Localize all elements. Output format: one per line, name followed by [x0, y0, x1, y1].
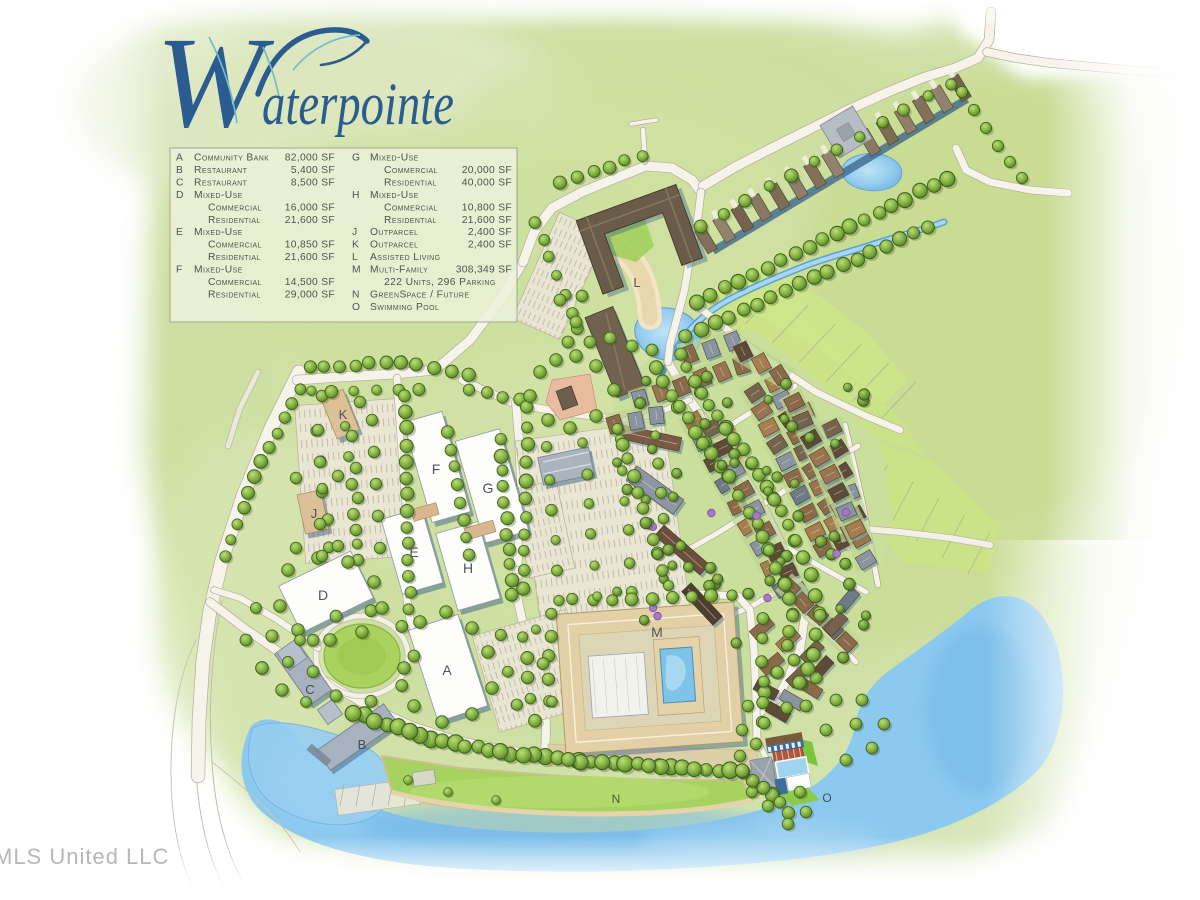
svg-text:82,000 SF: 82,000 SF	[285, 153, 335, 164]
svg-text:B: B	[358, 737, 367, 752]
svg-text:Restaurant: Restaurant	[194, 165, 248, 176]
svg-text:J: J	[311, 506, 318, 521]
svg-text:Residential: Residential	[208, 252, 261, 263]
svg-text:W: W	[156, 11, 275, 155]
svg-text:H: H	[352, 190, 359, 201]
svg-text:21,600 SF: 21,600 SF	[285, 252, 335, 263]
svg-text:H: H	[463, 560, 473, 576]
svg-text:5,400 SF: 5,400 SF	[291, 165, 335, 176]
svg-text:222 Units, 296 Parking: 222 Units, 296 Parking	[384, 277, 496, 288]
svg-text:D: D	[176, 190, 183, 201]
svg-text:10,850 SF: 10,850 SF	[285, 240, 335, 251]
svg-text:Commercial: Commercial	[208, 202, 262, 213]
svg-text:10,800 SF: 10,800 SF	[462, 202, 512, 213]
svg-text:L: L	[633, 275, 640, 290]
svg-text:Mixed-Use: Mixed-Use	[370, 153, 419, 164]
svg-text:E: E	[409, 544, 418, 560]
svg-text:Mixed-Use: Mixed-Use	[194, 265, 243, 276]
svg-text:Mixed-Use: Mixed-Use	[370, 190, 419, 201]
svg-text:N: N	[352, 289, 359, 300]
svg-text:GreenSpace / Future: GreenSpace / Future	[370, 289, 469, 300]
svg-text:2,400 SF: 2,400 SF	[468, 227, 512, 238]
svg-text:B: B	[176, 165, 183, 176]
svg-text:E: E	[176, 227, 183, 238]
svg-text:Swimming Pool: Swimming Pool	[370, 302, 439, 313]
svg-text:21,600 SF: 21,600 SF	[285, 215, 335, 226]
svg-text:F: F	[176, 265, 182, 276]
svg-text:A: A	[442, 662, 452, 678]
svg-text:L: L	[352, 252, 358, 263]
svg-text:Multi-Family: Multi-Family	[370, 265, 428, 276]
svg-text:Commercial: Commercial	[208, 277, 262, 288]
svg-text:Commercial: Commercial	[384, 165, 438, 176]
svg-text:O: O	[352, 302, 360, 313]
svg-text:J: J	[352, 227, 357, 238]
svg-text:O: O	[822, 791, 831, 805]
svg-text:21,600 SF: 21,600 SF	[462, 215, 512, 226]
svg-text:K: K	[339, 407, 348, 422]
svg-text:M: M	[352, 265, 361, 276]
svg-text:16,000 SF: 16,000 SF	[285, 202, 335, 213]
svg-text:F: F	[432, 461, 441, 477]
svg-text:aterpointe: aterpointe	[262, 71, 454, 137]
svg-text:C: C	[305, 682, 314, 697]
svg-text:Residential: Residential	[208, 289, 261, 300]
svg-text:308,349 SF: 308,349 SF	[456, 265, 512, 276]
svg-text:C: C	[176, 177, 184, 188]
svg-text:M: M	[651, 624, 663, 640]
svg-text:K: K	[352, 240, 359, 251]
svg-text:Residential: Residential	[384, 215, 437, 226]
svg-text:Outparcel: Outparcel	[370, 240, 418, 251]
svg-text:Commercial: Commercial	[384, 202, 438, 213]
svg-text:Restaurant: Restaurant	[194, 177, 248, 188]
svg-text:A: A	[176, 153, 183, 164]
svg-text:Mixed-Use: Mixed-Use	[194, 190, 243, 201]
svg-text:MLS United LLC: MLS United LLC	[0, 844, 169, 869]
svg-text:G: G	[352, 153, 360, 164]
svg-text:14,500 SF: 14,500 SF	[285, 277, 335, 288]
svg-text:G: G	[483, 480, 494, 496]
svg-text:20,000 SF: 20,000 SF	[462, 165, 512, 176]
svg-text:Residential: Residential	[208, 215, 261, 226]
svg-text:Assisted Living: Assisted Living	[370, 252, 440, 263]
svg-text:29,000 SF: 29,000 SF	[285, 289, 335, 300]
svg-text:Community Bank: Community Bank	[194, 153, 269, 164]
svg-text:2,400 SF: 2,400 SF	[468, 240, 512, 251]
svg-text:Mixed-Use: Mixed-Use	[194, 227, 243, 238]
svg-text:D: D	[318, 587, 328, 603]
svg-text:Commercial: Commercial	[208, 240, 262, 251]
svg-text:Outparcel: Outparcel	[370, 227, 418, 238]
svg-text:8,500 SF: 8,500 SF	[291, 177, 335, 188]
svg-text:N: N	[612, 792, 621, 806]
svg-text:40,000 SF: 40,000 SF	[462, 177, 512, 188]
svg-text:Residential: Residential	[384, 177, 437, 188]
